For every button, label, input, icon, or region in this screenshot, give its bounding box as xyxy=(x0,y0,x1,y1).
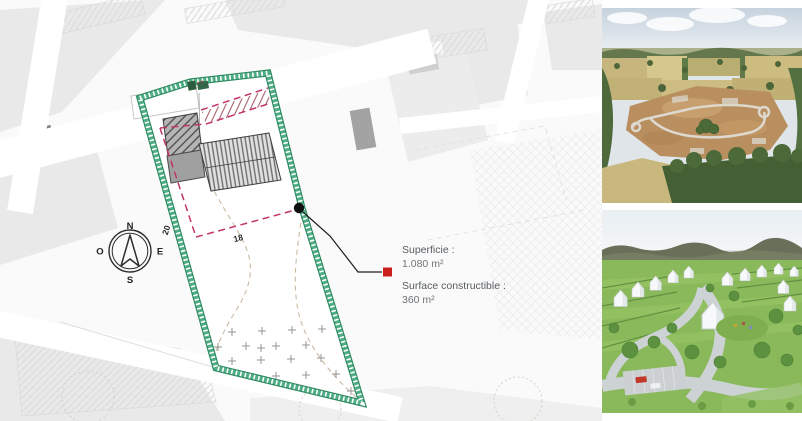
listing-media-panel: 20 18 N E S O Superficie : 1.080 m² Surf… xyxy=(0,0,802,421)
aerial-photo[interactable] xyxy=(602,8,802,203)
callout-anchor-dot xyxy=(294,203,304,213)
buildable-value: 360 m² xyxy=(402,294,435,306)
red-car xyxy=(635,376,647,383)
compass-east-label: E xyxy=(157,247,163,258)
compass-west-label: O xyxy=(96,247,103,258)
render-photo[interactable] xyxy=(602,210,802,413)
site-plan-svg: 20 18 N E S O Superficie : 1.080 m² Surf… xyxy=(0,0,602,421)
area-label: Superficie : xyxy=(402,244,455,256)
callout-marker-square xyxy=(383,268,392,277)
compass-south-label: S xyxy=(127,275,133,286)
striped-roof-building xyxy=(199,133,281,191)
playground xyxy=(716,315,768,341)
hatched-building xyxy=(163,113,202,156)
render-photo-art xyxy=(602,210,802,413)
aerial-photo-art xyxy=(602,8,802,203)
compass-north-label: N xyxy=(127,221,134,232)
site-plan: 20 18 N E S O Superficie : 1.080 m² Surf… xyxy=(0,0,602,421)
buildable-label: Surface constructible : xyxy=(402,280,506,292)
area-value: 1.080 m² xyxy=(402,258,444,270)
